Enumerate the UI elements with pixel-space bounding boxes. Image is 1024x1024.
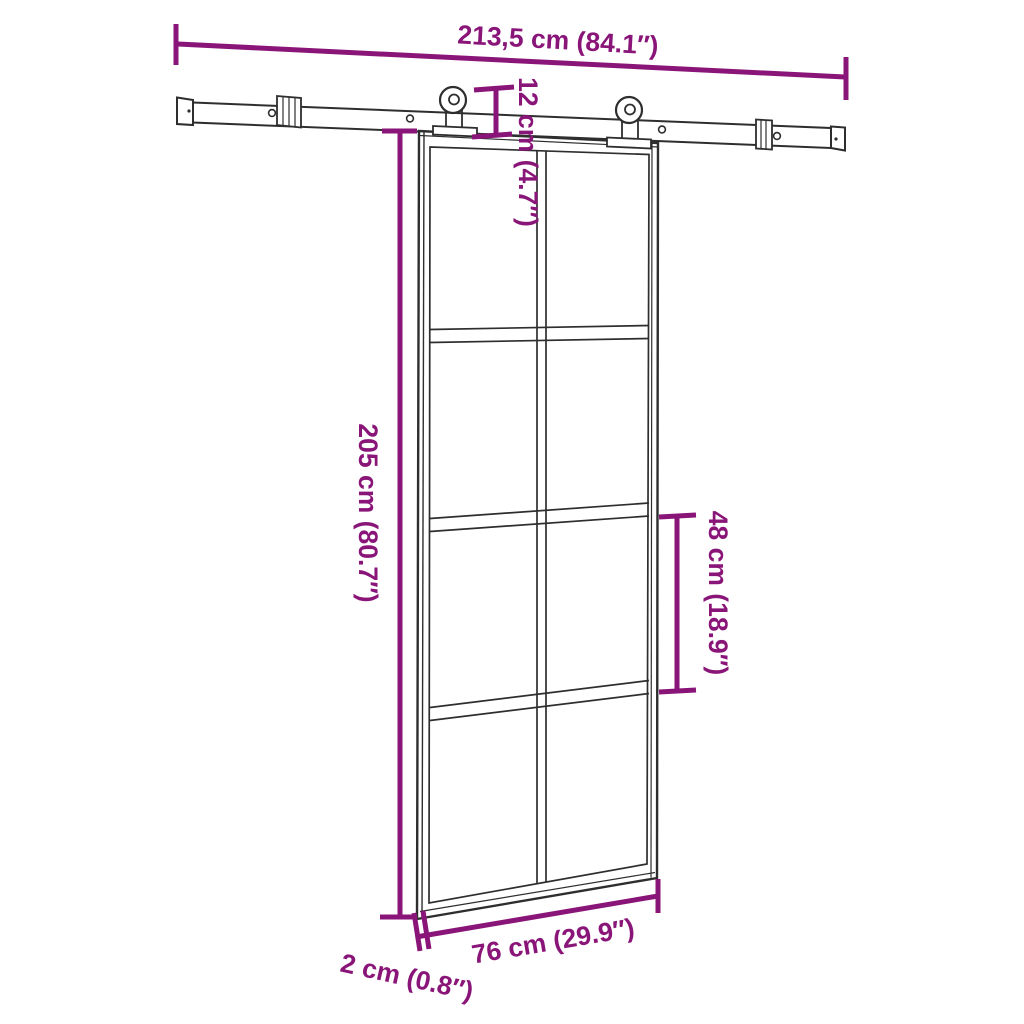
rail-end-cap-right xyxy=(831,127,845,151)
rail-end-screw-left xyxy=(187,109,190,112)
dimension-top-offset-label: 12 cm (4.7″) xyxy=(513,77,543,227)
roller-foot-right xyxy=(607,138,651,149)
dimension-section-height-tick-bottom xyxy=(659,690,696,692)
rail-connector-right xyxy=(756,120,772,150)
roller-axle-left xyxy=(449,95,459,105)
diagram-canvas: 213,5 cm (84.1″) 12 cm (4.7″) 205 cm (80… xyxy=(0,0,1024,1024)
dimension-top-offset-tick-top xyxy=(474,87,514,90)
roller-axle-right xyxy=(625,105,635,115)
rail-hole xyxy=(407,115,414,122)
dimension-section-height-label: 48 cm (18.9″) xyxy=(703,511,733,675)
dimension-rail-width-label: 213,5 cm (84.1″) xyxy=(457,19,660,60)
dimension-door-width-label: 76 cm (29.9″) xyxy=(469,912,636,969)
rail-end-screw-right xyxy=(834,137,837,140)
dimension-section-height: 48 cm (18.9″) xyxy=(659,511,733,692)
dimension-door-height-label: 205 cm (80.7″) xyxy=(353,423,383,602)
rail-hole xyxy=(269,110,276,117)
dimension-top-offset-tick-bottom xyxy=(472,134,512,137)
rail-hole xyxy=(774,133,781,140)
door-panel xyxy=(417,131,658,919)
roller-foot-left xyxy=(433,126,477,137)
rail-end-cap-left xyxy=(177,98,193,126)
rail-hole xyxy=(659,126,666,133)
dimension-door-thickness: 2 cm (0.8″) xyxy=(338,911,476,1006)
dimension-door-thickness-label: 2 cm (0.8″) xyxy=(338,948,476,1006)
dimension-section-height-tick-top xyxy=(659,515,696,517)
dimension-door-height: 205 cm (80.7″) xyxy=(353,131,417,917)
barn-door-diagram: 213,5 cm (84.1″) 12 cm (4.7″) 205 cm (80… xyxy=(0,0,1024,1024)
